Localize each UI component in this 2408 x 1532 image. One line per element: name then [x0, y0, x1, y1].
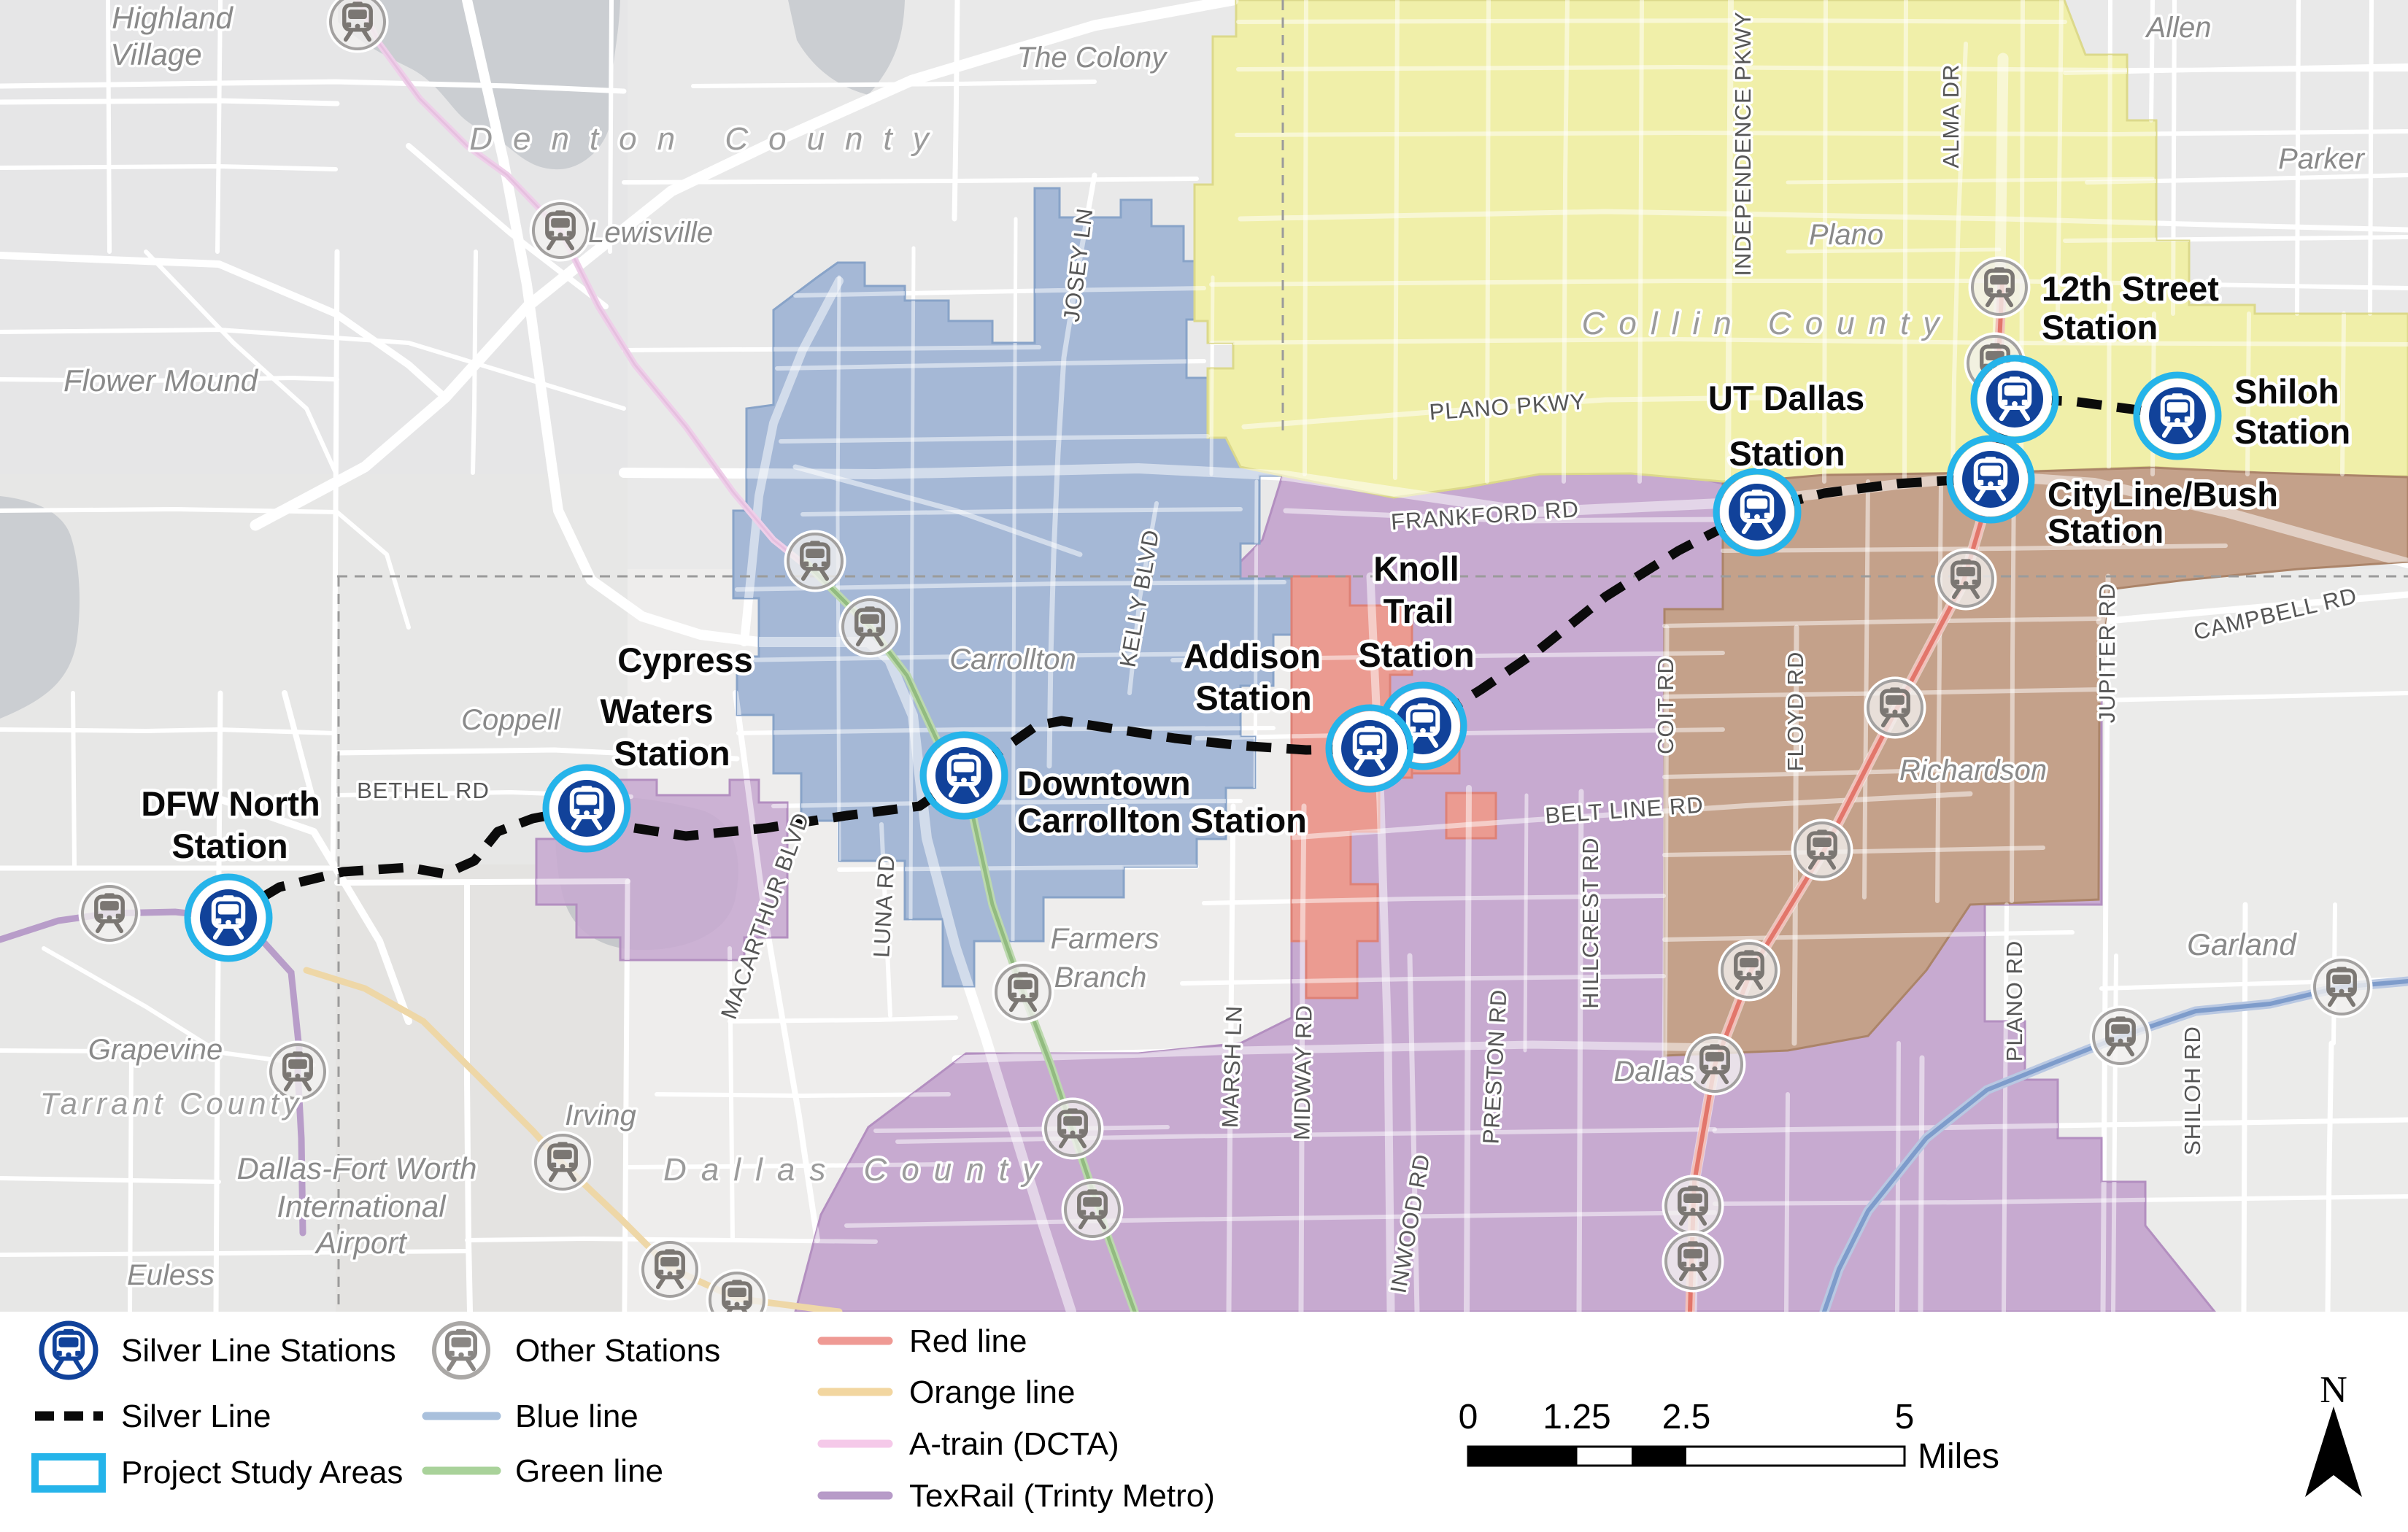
svg-text:Tarrant County: Tarrant County — [40, 1086, 303, 1121]
svg-text:1.25: 1.25 — [1543, 1398, 1610, 1436]
svg-text:LUNA RD: LUNA RD — [868, 854, 899, 959]
svg-text:Garland: Garland — [2187, 927, 2297, 962]
svg-text:Project Study Areas: Project Study Areas — [121, 1455, 403, 1490]
svg-text:Grapevine: Grapevine — [88, 1034, 223, 1066]
svg-text:Green line: Green line — [515, 1453, 663, 1489]
svg-text:0: 0 — [1459, 1398, 1478, 1436]
svg-text:Highland: Highland — [112, 1, 234, 35]
svg-text:Collin County: Collin County — [1582, 306, 1953, 341]
svg-text:JUPITER RD: JUPITER RD — [2094, 583, 2120, 724]
svg-text:BETHEL RD: BETHEL RD — [357, 778, 490, 803]
svg-text:Trail: Trail — [1384, 592, 1454, 630]
svg-text:INDEPENDENCE PKWY: INDEPENDENCE PKWY — [1730, 11, 1756, 276]
svg-text:Station: Station — [614, 734, 730, 773]
svg-text:Addison: Addison — [1184, 637, 1321, 676]
svg-text:Dallas: Dallas — [1613, 1056, 1694, 1088]
svg-text:Red line: Red line — [909, 1323, 1027, 1359]
svg-text:Flower Mound: Flower Mound — [63, 363, 259, 398]
svg-text:Silver Line Stations: Silver Line Stations — [121, 1333, 396, 1369]
svg-text:Station: Station — [1358, 635, 1474, 674]
svg-text:Station: Station — [2048, 511, 2164, 550]
svg-text:ALMA DR: ALMA DR — [1938, 63, 1964, 168]
svg-text:Airport: Airport — [314, 1226, 408, 1260]
svg-text:Coppell: Coppell — [461, 704, 561, 736]
svg-text:Village: Village — [110, 37, 201, 71]
svg-text:COIT RD: COIT RD — [1653, 657, 1678, 754]
svg-text:N: N — [2320, 1369, 2347, 1411]
svg-text:International: International — [277, 1189, 447, 1223]
svg-text:Knoll: Knoll — [1373, 549, 1459, 588]
svg-text:Shiloh: Shiloh — [2234, 372, 2339, 411]
svg-text:Station: Station — [1195, 678, 1311, 717]
svg-text:Station: Station — [1729, 434, 1845, 473]
svg-text:Other Stations: Other Stations — [515, 1333, 720, 1369]
svg-text:Station: Station — [171, 827, 288, 865]
svg-text:Irving: Irving — [565, 1099, 636, 1131]
svg-text:Dallas County: Dallas County — [663, 1152, 1053, 1188]
svg-text:Cypress: Cypress — [617, 641, 753, 679]
svg-text:UT Dallas: UT Dallas — [1708, 379, 1864, 417]
svg-text:CityLine/Bush: CityLine/Bush — [2048, 475, 2278, 514]
svg-text:Miles: Miles — [1918, 1437, 1999, 1476]
svg-text:Orange line: Orange line — [909, 1374, 1075, 1410]
svg-text:12th Street: 12th Street — [2042, 269, 2219, 308]
svg-text:Branch: Branch — [1054, 962, 1147, 994]
svg-text:Blue line: Blue line — [515, 1398, 638, 1434]
svg-text:Station: Station — [2042, 308, 2158, 347]
svg-text:TexRail (Trinty Metro): TexRail (Trinty Metro) — [909, 1478, 1215, 1514]
svg-text:MARSH LN: MARSH LN — [1217, 1005, 1247, 1128]
svg-text:DFW North: DFW North — [141, 784, 320, 823]
svg-text:SHILOH RD: SHILOH RD — [2180, 1026, 2205, 1156]
svg-text:HILLCREST RD: HILLCREST RD — [1578, 837, 1603, 1008]
svg-text:Downtown: Downtown — [1017, 764, 1191, 802]
svg-text:The Colony: The Colony — [1017, 42, 1169, 74]
svg-text:Parker: Parker — [2278, 143, 2365, 175]
svg-text:MIDWAY RD: MIDWAY RD — [1289, 1005, 1316, 1140]
svg-text:5: 5 — [1895, 1398, 1915, 1436]
svg-text:Euless: Euless — [127, 1259, 215, 1291]
svg-text:Carrollton Station: Carrollton Station — [1017, 801, 1307, 840]
svg-text:2.5: 2.5 — [1662, 1398, 1711, 1436]
svg-text:Dallas-Fort Worth: Dallas-Fort Worth — [236, 1151, 476, 1185]
svg-text:Plano: Plano — [1809, 219, 1883, 251]
svg-text:A-train (DCTA): A-train (DCTA) — [909, 1426, 1119, 1462]
svg-text:PLANO RD: PLANO RD — [2002, 940, 2027, 1061]
svg-text:Allen: Allen — [2145, 12, 2212, 44]
svg-text:Denton County: Denton County — [469, 121, 949, 157]
svg-text:Farmers: Farmers — [1051, 923, 1159, 955]
svg-text:Lewisville: Lewisville — [588, 217, 713, 249]
svg-text:Silver Line: Silver Line — [121, 1398, 271, 1434]
svg-text:FLOYD RD: FLOYD RD — [1783, 651, 1808, 772]
svg-text:Station: Station — [2234, 412, 2350, 451]
svg-text:Richardson: Richardson — [1899, 754, 2047, 786]
svg-text:Carrollton: Carrollton — [949, 643, 1076, 676]
svg-text:Waters: Waters — [601, 692, 714, 730]
